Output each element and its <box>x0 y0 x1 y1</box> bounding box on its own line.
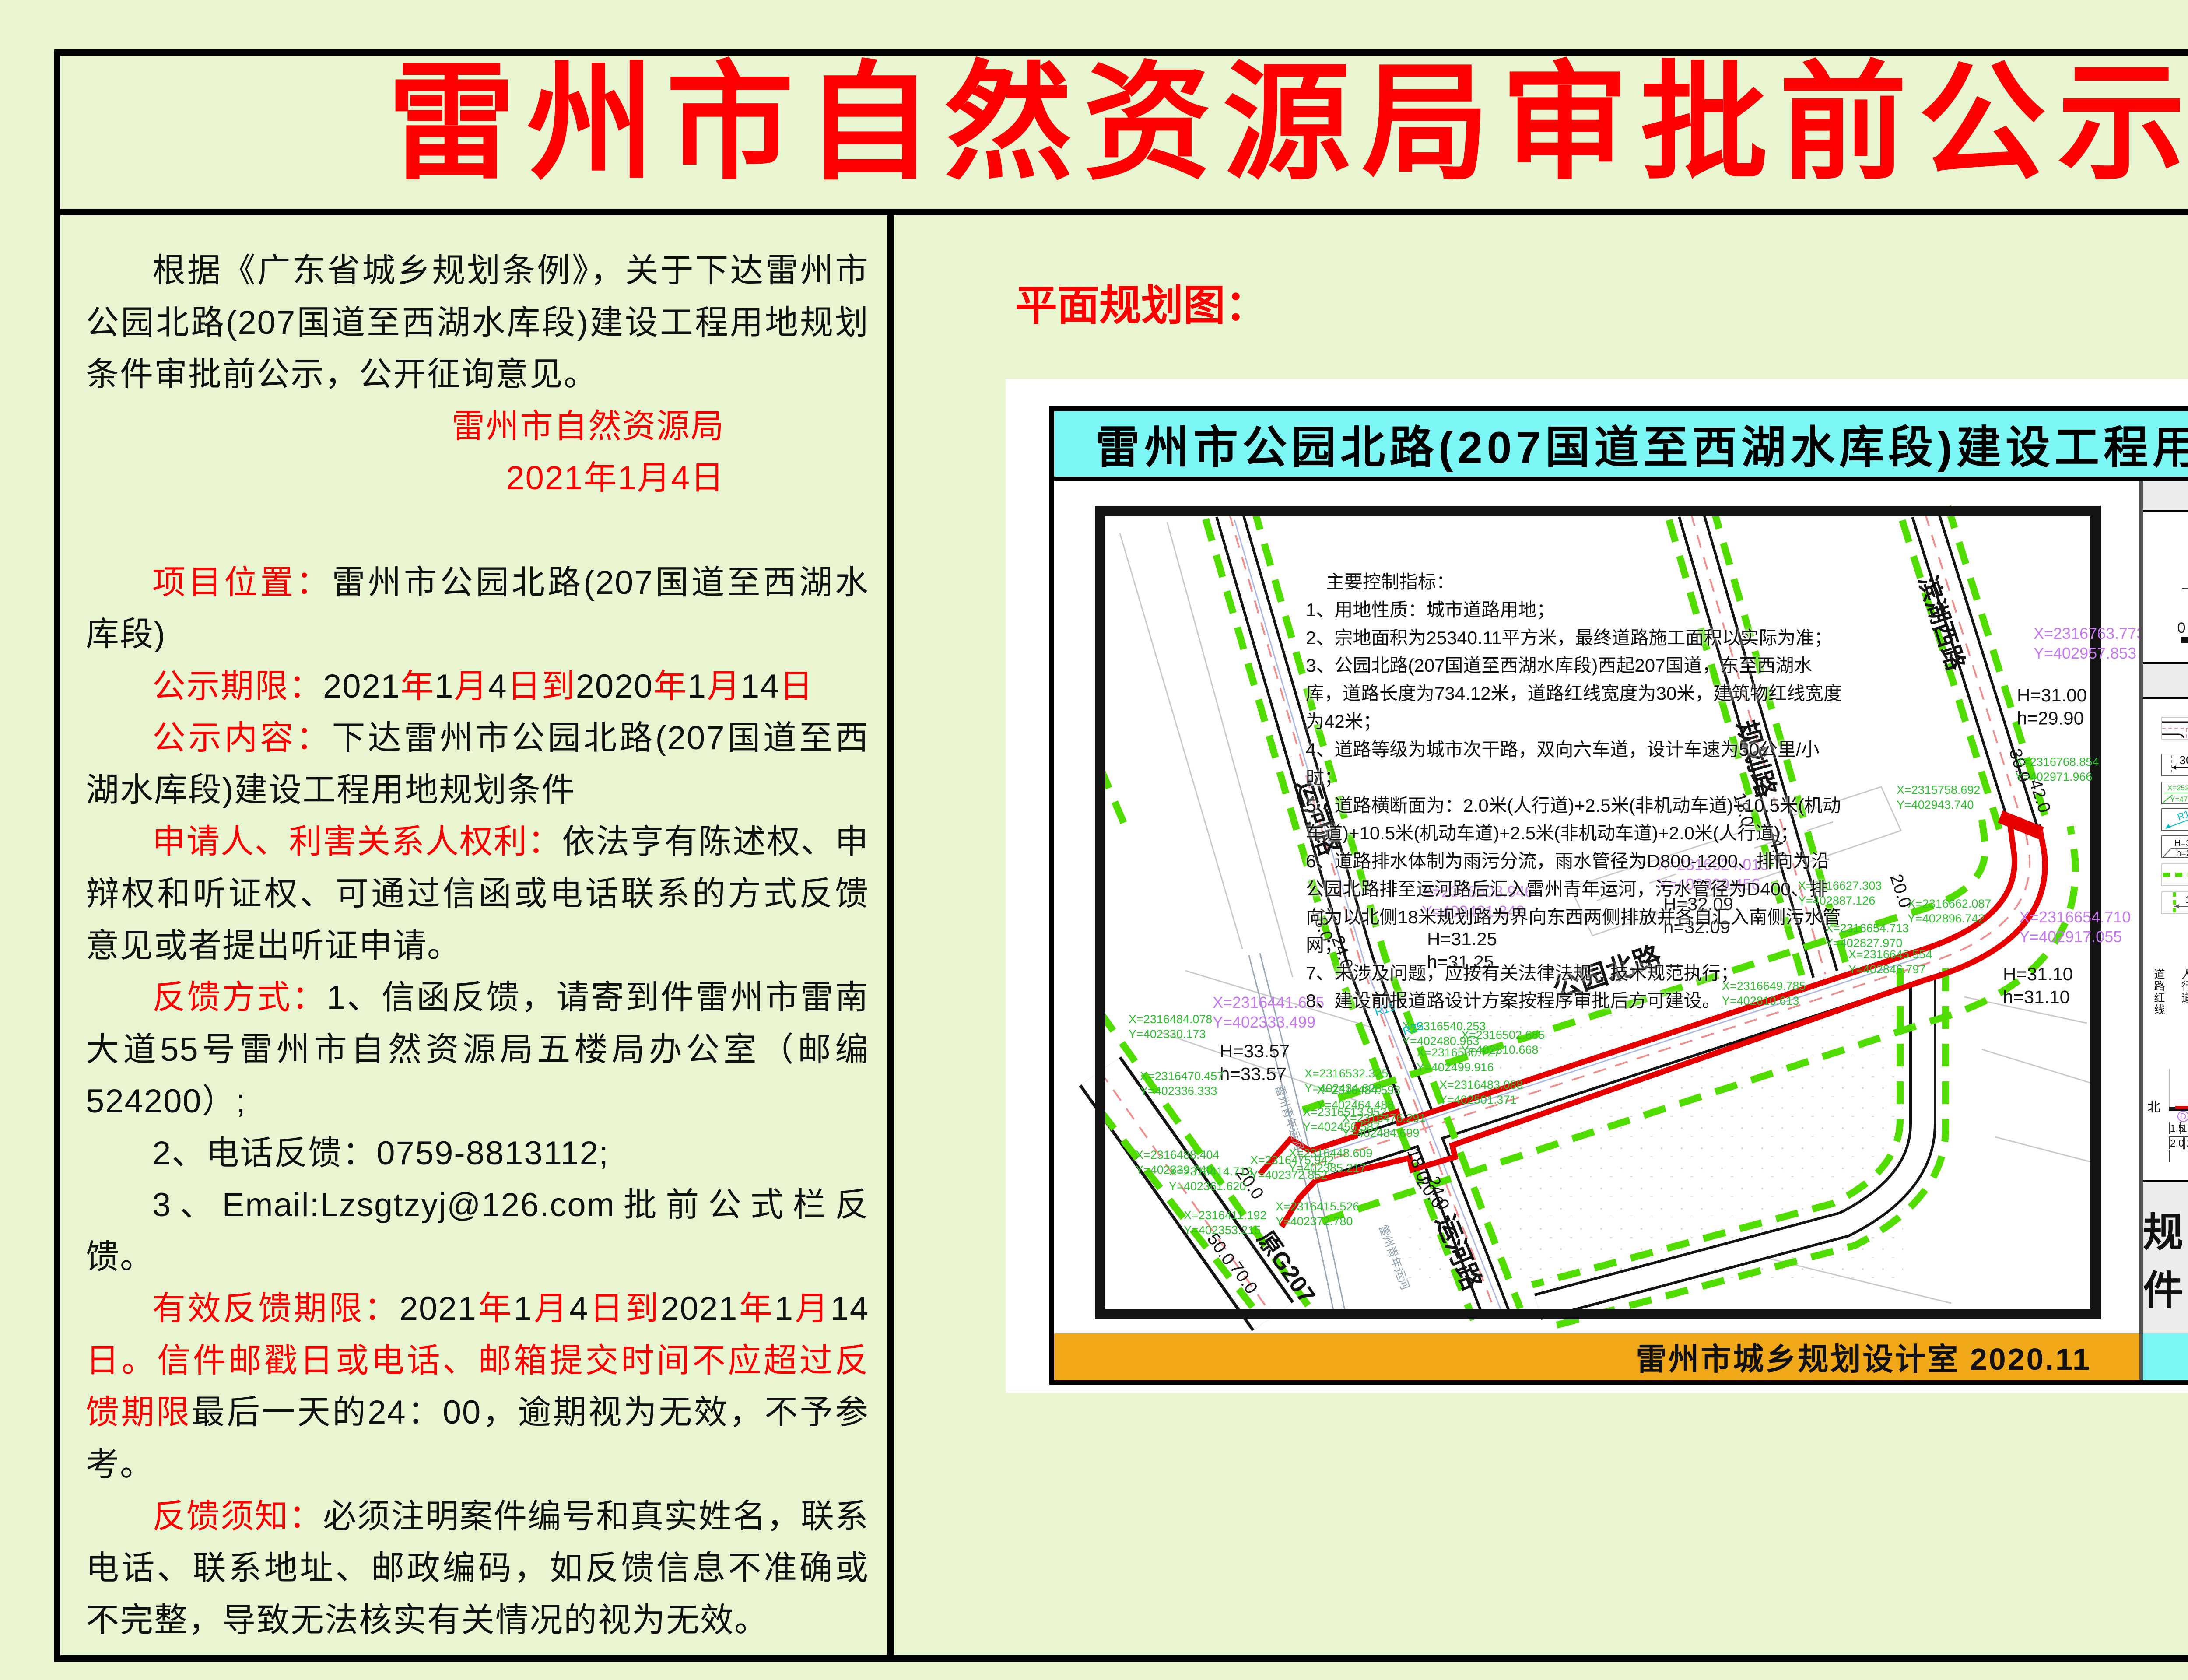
map-annotation: X=2316763.773Y=402957.853 <box>2034 624 2139 662</box>
cross-section-drawing: D R W Y J L <box>2143 1065 2188 1122</box>
legend: 规划道路 30 道路红线宽度（米） <box>2143 699 2188 965</box>
svg-text:X=2526545.924: X=2526545.924 <box>2167 784 2188 792</box>
notice-paragraph: 有效反馈期限：2021年1月4日到2021年1月14日。信件邮戳日或电话、邮箱提… <box>86 1283 869 1491</box>
map-note-line: 8、建设前报道路设计方案按程序审批后方可建设。 <box>1306 987 1844 1015</box>
notice-text-panel: 根据《广东省城乡规划条例》，关于下达雷州市公园北路(207国道至西湖水库段)建设… <box>86 245 869 1646</box>
legend-item-turn-radius: R15 转弯半径标注（米） <box>2161 806 2188 833</box>
legend-item-planned-road: 规划道路 <box>2161 715 2188 742</box>
cross-section-dims: 2.02.510.510.52.52.0 <box>2169 1136 2188 1149</box>
map-note-line: 3、公园北路(207国道至西湖水库段)西起207国道，东至西湖水库，道路长度为7… <box>1306 652 1844 735</box>
panel-divider <box>887 209 894 1655</box>
map-frame: 雷州市公园北路(207国道至西湖水库段)建设工程用地规划 <box>1049 406 2188 1385</box>
credit-bar: 雷州市城乡规划设计室 2020.11 <box>1054 1333 2139 1380</box>
map-sidebar: 风玫瑰图 N <box>2139 481 2188 1333</box>
cross-section-markers: D R W Y J L <box>2178 1111 2188 1122</box>
map-note-line: 4、道路等级为城市次干路，双向六车道，设计车速为50公里/小时； <box>1306 736 1844 792</box>
corner-box <box>2139 1333 2188 1380</box>
svg-text:Y=476323.736: Y=476323.736 <box>2170 795 2188 803</box>
map-note-line: 2、宗地面积为25340.11平方米，最终道路施工面积以实际为准； <box>1306 624 1844 652</box>
notice-paragraph: 公示期限：2021年1月4日到2020年1月14日 <box>86 661 869 713</box>
svg-text:15: 15 <box>2185 894 2188 905</box>
building-line-icon <box>2161 863 2188 886</box>
plan-map-label: 平面规划图： <box>1015 271 1267 332</box>
notice-paragraph: 申请人、利害关系人权利：依法亨有陈述权、申辩权和听证权、可通过信函或电话联系的方… <box>86 816 869 972</box>
map-note-line: 1、用地性质：城市道路用地； <box>1306 596 1844 624</box>
elevation-icon: H=34.00 h=25.33 <box>2161 835 2188 858</box>
notice-paragraph: 反馈须知：必须注明案件编号和真实姓名，联系电话、联系地址、邮政编码，如反馈信息不… <box>86 1491 869 1647</box>
map-control-notes: 主要控制指标：1、用地性质：城市道路用地；2、宗地面积为25340.11平方米，… <box>1306 568 1844 1015</box>
legend-header: 图 例 <box>2143 662 2188 699</box>
windrose-box: N <box>2143 512 2188 662</box>
legend-item-redline-width: 30 道路红线宽度（米） <box>2161 751 2188 779</box>
map-annotation: H=33.57h=33.57 <box>1220 1041 1290 1084</box>
cross-section-total: 30.0 <box>2169 1150 2188 1162</box>
turn-radius-icon: R15 <box>2161 808 2188 831</box>
map-note-line: 7、未涉及问题，应按有关法律法规、技术规范执行； <box>1306 959 1844 987</box>
map-note-line: 5、道路横断面为：2.0米(人行道)+2.5米(非机动车道)+10.5米(机动车… <box>1306 792 1844 848</box>
map-annotation: X=2316654.710Y=402917.055 <box>2019 908 2131 946</box>
svg-text:30: 30 <box>2180 754 2188 767</box>
map-annotation: X=2316484.078Y=402330.173 <box>1129 1013 1212 1041</box>
map-note-line: 6、道路排水体制为雨污分流，雨水管径为D800-1200、排向为沿公园北路排至运… <box>1306 847 1844 959</box>
cross-section-subdims: 1.51.51.51.51.51.5 <box>2169 1122 2188 1134</box>
redline-width-icon: 30 <box>2161 754 2188 776</box>
windrose-header: 风玫瑰图 <box>2143 481 2188 512</box>
notice-paragraph: 3、Email:Lzsgtzyj@126.com批前公式栏反馈。 <box>86 1179 869 1283</box>
title-divider <box>54 209 2188 215</box>
map-note-line: 主要控制指标： <box>1306 568 1844 596</box>
map-annotation: X=2315758.692Y=402943.740 <box>1897 783 1980 811</box>
cross-section-lane-labels: 道路红线 人行道 非机动车道 机动车道 道路中心线 机动车道 非机动车道 人行道… <box>2151 968 2188 1028</box>
legend-item-elevation: H=34.00 h=25.33 规划标高现状标高 <box>2161 833 2188 860</box>
road-cross-section: 道路红线 人行道 非机动车道 机动车道 道路中心线 机动车道 非机动车道 人行道… <box>2143 965 2188 1180</box>
plan-map-sheet: 雷州市公园北路(207国道至西湖水库段)建设工程用地规划 <box>1006 379 2188 1393</box>
legend-item-building-line: 建筑控制线 <box>2161 861 2188 888</box>
legend-item-control-point: X=2526545.924 Y=476323.736 控制点坐标 <box>2161 779 2188 807</box>
map-drawing: 运河路运河路规划路滨湖西路公园北路原G207雷州青年运河雷州青年运河18.024… <box>1054 481 2139 1333</box>
notice-paragraph: 反馈方式：1、信函反馈，请寄到件雷州市雷南大道55号雷州市自然资源局五楼局办公室… <box>86 972 869 1128</box>
svg-text:D: D <box>2180 1112 2186 1122</box>
legend-item-setback: 15 建筑退让距离(米) <box>2161 889 2188 916</box>
notice-paragraph: 项目位置：雷州市公园北路(207国道至西湖水库段) <box>86 557 869 661</box>
map-title: 雷州市公园北路(207国道至西湖水库段)建设工程用地规划 <box>1054 411 2188 481</box>
planned-road-icon <box>2161 717 2188 740</box>
svg-text:H=34.00: H=34.00 <box>2174 838 2188 848</box>
notice-paragraph: 雷州市自然资源局 <box>86 401 869 453</box>
page-title: 雷州市自然资源局审批前公示 <box>0 56 2188 190</box>
notice-paragraph: 根据《广东省城乡规划条例》，关于下达雷州市公园北路(207国道至西湖水库段)建设… <box>86 245 869 401</box>
setback-icon: 15 <box>2161 891 2188 914</box>
scale-0: 0 <box>2177 620 2186 636</box>
notice-paragraph: 2、电话反馈：0759-8813112; <box>86 1128 869 1180</box>
control-point-icon: X=2526545.924 Y=476323.736 <box>2161 782 2188 804</box>
notice-paragraph: 公示内容：下达雷州市公园北路(207国道至西湖水库段)建设工程用地规划条件 <box>86 712 869 816</box>
notice-paragraph: 2021年1月4日 <box>86 452 869 505</box>
svg-text:h=25.33: h=25.33 <box>2176 849 2188 858</box>
map-annotation: H=31.00h=29.90 <box>2017 685 2087 729</box>
design-conditions-header: 规划设计条件 <box>2143 1180 2188 1333</box>
scale-bar: 0 100 50 150M <box>2177 620 2188 662</box>
